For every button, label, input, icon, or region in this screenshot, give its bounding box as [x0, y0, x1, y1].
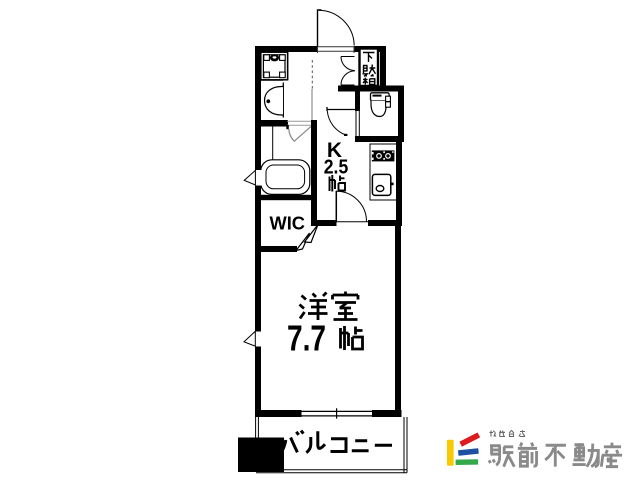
svg-text:7.7: 7.7 — [287, 318, 326, 359]
svg-text:2.5: 2.5 — [324, 156, 349, 179]
svg-text:WIC: WIC — [270, 213, 306, 234]
